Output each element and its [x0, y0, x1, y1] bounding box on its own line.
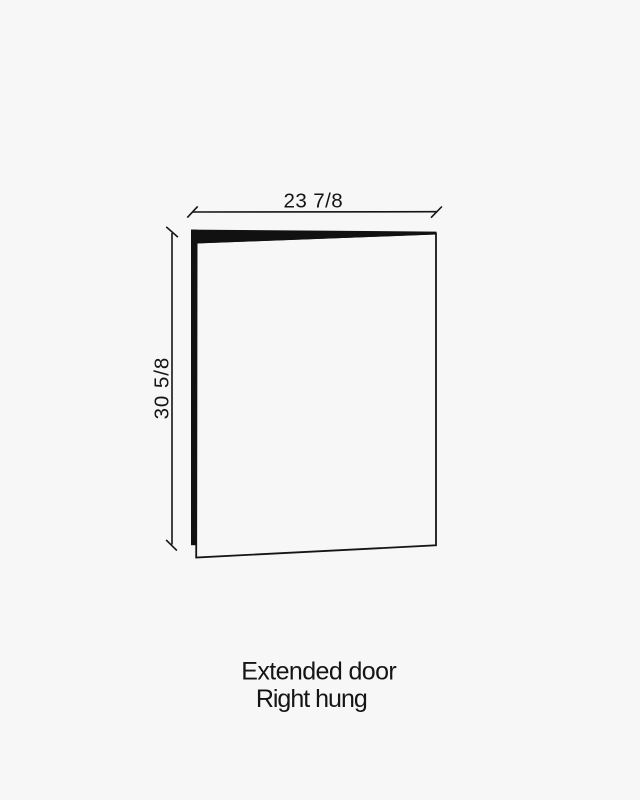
svg-text:23 7/8: 23 7/8 — [283, 190, 343, 213]
svg-text:30 5/8: 30 5/8 — [151, 357, 174, 420]
svg-text:Extended door: Extended door — [241, 657, 396, 685]
svg-text:Right hung: Right hung — [256, 685, 367, 713]
